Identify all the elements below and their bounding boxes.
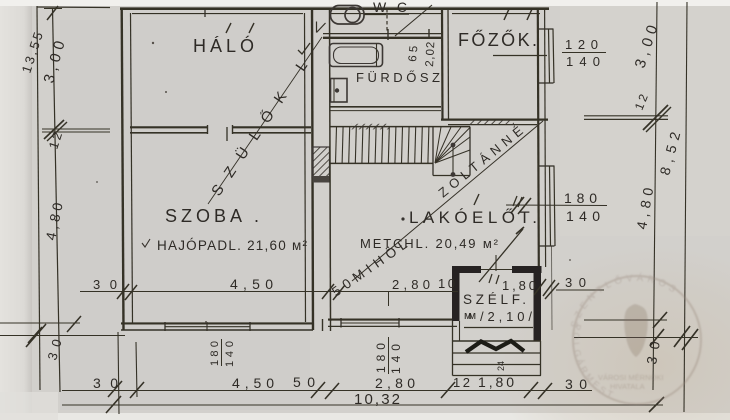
svg-text:2,80: 2,80 bbox=[375, 375, 415, 391]
svg-text:1,80: 1,80 bbox=[478, 374, 514, 390]
svg-text:HÁLÓ: HÁLÓ bbox=[193, 35, 258, 56]
svg-text:METCHL. 20,49 м²: METCHL. 20,49 м² bbox=[360, 236, 499, 251]
svg-text:140: 140 bbox=[389, 344, 403, 374]
svg-text:180: 180 bbox=[209, 341, 221, 366]
svg-text:2,02: 2,02 bbox=[424, 42, 437, 68]
svg-text:FŐZŐK.: FŐZŐK. bbox=[458, 29, 540, 50]
svg-text:мм: мм bbox=[464, 310, 476, 322]
svg-text:180: 180 bbox=[374, 343, 388, 373]
svg-text:120: 120 bbox=[565, 37, 598, 52]
svg-text:140: 140 bbox=[224, 341, 236, 367]
svg-text:2,80: 2,80 bbox=[392, 277, 430, 292]
svg-text:24: 24 bbox=[496, 361, 506, 371]
svg-text:4,50: 4,50 bbox=[232, 375, 274, 391]
svg-text:10,32: 10,32 bbox=[354, 391, 400, 408]
svg-text:140: 140 bbox=[566, 54, 600, 69]
svg-text:1,80: 1,80 bbox=[502, 278, 536, 293]
svg-text:140: 140 bbox=[566, 208, 600, 224]
svg-text:LAKÓELŐT.: LAKÓELŐT. bbox=[409, 208, 540, 227]
svg-text:SZOBA .: SZOBA . bbox=[165, 206, 263, 226]
svg-text:4,50: 4,50 bbox=[230, 276, 273, 292]
svg-text:180: 180 bbox=[564, 190, 597, 206]
svg-text:HIVATALA: HIVATALA bbox=[610, 382, 645, 391]
svg-text:VÁROSI MÉRNÖKI: VÁROSI MÉRNÖKI bbox=[598, 373, 663, 382]
svg-text:FÜRDŐSZ: FÜRDŐSZ bbox=[356, 70, 442, 85]
svg-text:SZÉLF.: SZÉLF. bbox=[463, 292, 527, 307]
svg-text:HAJÓPADL. 21,60 м²: HAJÓPADL. 21,60 м² bbox=[157, 238, 308, 253]
